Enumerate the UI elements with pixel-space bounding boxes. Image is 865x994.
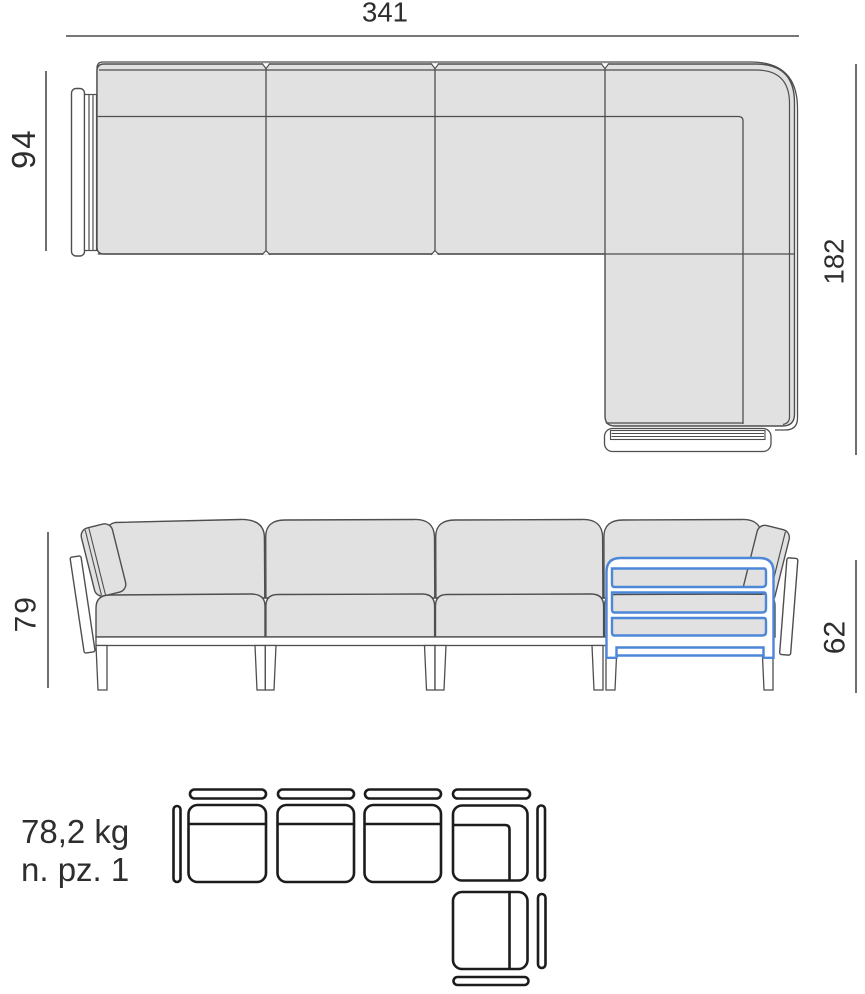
svg-text:62: 62	[819, 621, 852, 654]
svg-text:n. pz. 1: n. pz. 1	[21, 851, 129, 888]
svg-text:182: 182	[819, 239, 850, 285]
svg-text:78,2 kg: 78,2 kg	[21, 813, 129, 850]
svg-text:79: 79	[10, 595, 43, 632]
svg-text:94: 94	[5, 128, 42, 169]
svg-text:341: 341	[362, 0, 408, 28]
